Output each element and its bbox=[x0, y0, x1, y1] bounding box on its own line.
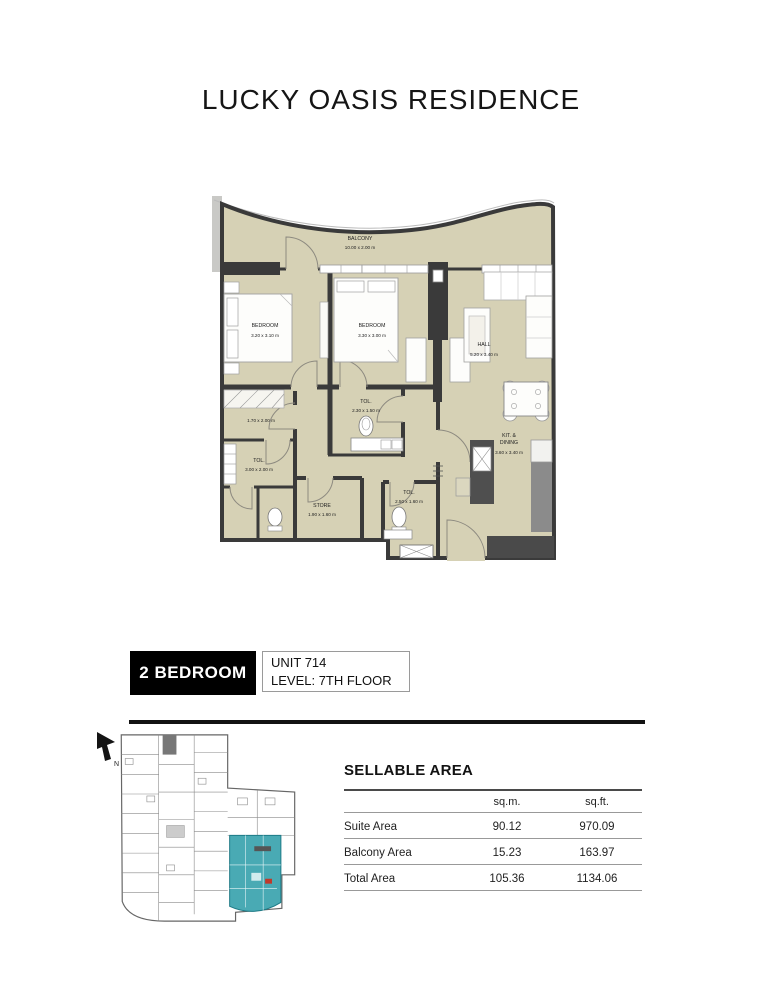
floor-plan: BALCONY 10.00 x 2.00 m BEDROOM 3.20 x 3.… bbox=[210, 190, 572, 575]
brochure-page: LUCKY OASIS RESIDENCE bbox=[0, 0, 782, 1000]
unit-type-badge: 2 BEDROOM bbox=[130, 651, 256, 695]
table-header-row: sq.m. sq.ft. bbox=[344, 789, 642, 812]
unit-marker bbox=[265, 879, 272, 884]
sellable-area-title: SELLABLE AREA bbox=[344, 762, 473, 779]
row-sqft: 1134.06 bbox=[552, 873, 642, 885]
header-spacer bbox=[344, 796, 462, 808]
unit-info-box: UNIT 714 LEVEL: 7TH FLOOR bbox=[262, 651, 410, 692]
room-label: TOL. bbox=[360, 399, 371, 405]
row-label: Balcony Area bbox=[344, 847, 462, 859]
floor-plan-svg: BALCONY 10.00 x 2.00 m BEDROOM 3.20 x 3.… bbox=[210, 190, 572, 575]
room-dims: 2.30 x 1.50 m bbox=[352, 408, 380, 413]
room-label: BEDROOM bbox=[252, 323, 279, 329]
room-label: BALCONY bbox=[348, 236, 373, 242]
room-dims: 5.20 x 3.40 m bbox=[470, 352, 498, 357]
tv-screen bbox=[433, 270, 443, 282]
room-label: STORE bbox=[313, 503, 331, 509]
row-label: Total Area bbox=[344, 873, 462, 885]
header-sqm: sq.m. bbox=[462, 796, 552, 808]
unit-level: LEVEL: 7TH FLOOR bbox=[271, 672, 409, 690]
room-label: BEDROOM bbox=[359, 323, 386, 329]
unit-outline bbox=[222, 204, 554, 558]
wall-block bbox=[222, 262, 280, 275]
row-sqm: 90.12 bbox=[462, 821, 552, 833]
kitchen-counter bbox=[531, 462, 552, 532]
room-dims: 2.50 x 1.60 m bbox=[395, 499, 423, 504]
table-row: Total Area 105.36 1134.06 bbox=[344, 864, 642, 891]
row-label: Suite Area bbox=[344, 821, 462, 833]
key-plan bbox=[106, 727, 306, 929]
room-label: HALL bbox=[478, 342, 491, 348]
room-dims: 3.60 x 3.40 m bbox=[495, 450, 523, 455]
room-dims: 3.30 x 3.00 m bbox=[358, 333, 386, 338]
row-sqft: 163.97 bbox=[552, 847, 642, 859]
room-label: TOL. bbox=[403, 490, 414, 496]
room-label: TOL. bbox=[253, 458, 264, 464]
room-dims: 3.20 x 3.10 m bbox=[251, 333, 279, 338]
table-row: Balcony Area 15.23 163.97 bbox=[344, 838, 642, 864]
room-dims: 1.70 x 2.00 m bbox=[247, 418, 275, 423]
sellable-area-table: sq.m. sq.ft. Suite Area 90.12 970.09 Bal… bbox=[344, 789, 642, 891]
table-row: Suite Area 90.12 970.09 bbox=[344, 812, 642, 838]
room-dims: 3.00 x 2.00 m bbox=[245, 467, 273, 472]
room-dims: 1.90 x 1.60 m bbox=[308, 512, 336, 517]
keyplan-lobby bbox=[167, 826, 185, 838]
row-sqm: 105.36 bbox=[462, 873, 552, 885]
highlighted-unit-room bbox=[251, 873, 261, 881]
page-title: LUCKY OASIS RESIDENCE bbox=[0, 84, 782, 116]
keyplan-core bbox=[163, 735, 177, 755]
room-dims: 10.00 x 2.00 m bbox=[345, 245, 376, 250]
header-sqft: sq.ft. bbox=[552, 796, 642, 808]
fridge bbox=[531, 440, 552, 462]
row-sqft: 970.09 bbox=[552, 821, 642, 833]
entry-block bbox=[487, 536, 554, 558]
highlighted-unit-core bbox=[254, 846, 271, 851]
entry-threshold bbox=[447, 561, 485, 566]
dining-set bbox=[503, 381, 549, 421]
room-label: DINING bbox=[500, 440, 518, 446]
room-label: KIT. & bbox=[502, 433, 516, 439]
row-sqm: 15.23 bbox=[462, 847, 552, 859]
section-divider bbox=[129, 720, 645, 724]
unit-number: UNIT 714 bbox=[271, 654, 409, 672]
dressing-hatch bbox=[224, 390, 284, 408]
tv-partition-stem bbox=[433, 340, 442, 402]
